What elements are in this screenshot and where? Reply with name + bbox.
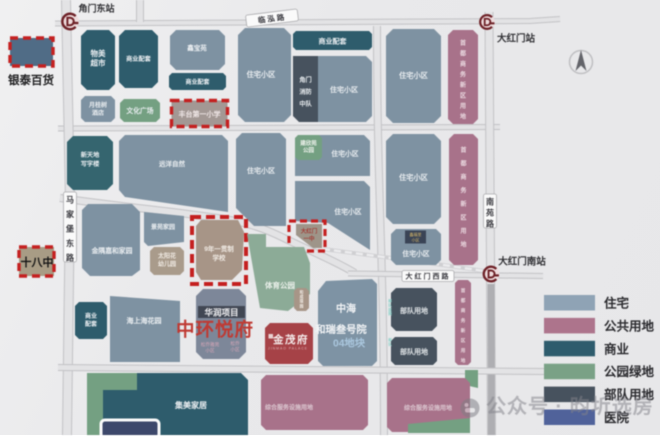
- svg-text:一中: 一中: [303, 235, 315, 243]
- svg-text:住宅小区: 住宅小区: [399, 71, 428, 80]
- svg-text:公园绿地: 公园绿地: [604, 364, 655, 379]
- svg-text:部队用地: 部队用地: [400, 306, 428, 315]
- svg-text:大红门站: 大红门站: [497, 33, 536, 45]
- svg-text:商业: 商业: [85, 312, 97, 320]
- svg-text:鑫福里: 鑫福里: [410, 231, 422, 237]
- svg-text:公共用地: 公共用地: [604, 318, 655, 333]
- svg-text:综合服务设施用地: 综合服务设施用地: [404, 404, 452, 412]
- svg-text:建欣苑: 建欣苑: [300, 139, 317, 147]
- svg-text:集美家居: 集美家居: [174, 400, 207, 410]
- svg-text:中海: 中海: [336, 302, 356, 315]
- svg-text:中环悦府: 中环悦府: [176, 319, 254, 340]
- svg-text:文化广场: 文化广场: [125, 106, 153, 115]
- svg-text:商业配套: 商业配套: [126, 55, 152, 63]
- svg-text:松乔: 松乔: [230, 340, 240, 347]
- svg-text:04地块: 04地块: [333, 337, 366, 350]
- svg-text:大红门西路: 大红门西路: [406, 272, 451, 281]
- svg-text:南苑路: 南苑路: [485, 197, 495, 229]
- svg-text:物美: 物美: [91, 48, 106, 58]
- svg-text:住宅小区: 住宅小区: [331, 149, 358, 158]
- svg-text:9年一贯制: 9年一贯制: [204, 244, 234, 253]
- svg-text:小区: 小区: [412, 237, 420, 243]
- svg-text:住宅小区: 住宅小区: [247, 70, 276, 79]
- svg-text:丰台第一小学: 丰台第一小学: [179, 110, 221, 119]
- svg-text:小区: 小区: [205, 347, 215, 354]
- svg-text:华润项目: 华润项目: [204, 308, 238, 318]
- svg-text:部队: 部队: [388, 337, 392, 346]
- svg-text:住宅小区: 住宅小区: [247, 166, 275, 175]
- svg-text:海上海花园: 海上海花园: [127, 316, 162, 325]
- svg-text:商业: 商业: [604, 341, 630, 356]
- svg-text:月桂树: 月桂树: [88, 101, 107, 109]
- svg-text:金茂府: 金茂府: [272, 333, 309, 346]
- svg-text:住宅小区: 住宅小区: [330, 85, 358, 94]
- svg-text:大红门南站: 大红门南站: [498, 256, 546, 268]
- svg-text:公众号 · 昀圻选房: 公众号 · 昀圻选房: [486, 394, 654, 418]
- svg-text:JINMAO PALACE: JINMAO PALACE: [268, 347, 308, 351]
- svg-text:大红门: 大红门: [301, 227, 318, 235]
- svg-text:住宅小区: 住宅小区: [402, 249, 429, 258]
- svg-text:综合服务设施用地: 综合服务设施用地: [265, 404, 313, 412]
- svg-text:角门东站: 角门东站: [78, 3, 114, 14]
- svg-text:商业配套: 商业配套: [319, 37, 348, 46]
- svg-text:小区: 小区: [230, 346, 240, 353]
- svg-text:太阳花: 太阳花: [157, 252, 176, 260]
- svg-text:学校: 学校: [213, 253, 227, 262]
- svg-text:配套: 配套: [85, 320, 97, 328]
- svg-text:部队用地: 部队用地: [400, 347, 428, 356]
- svg-text:体育公园: 体育公园: [265, 280, 295, 290]
- svg-text:部队医院: 部队医院: [388, 298, 392, 316]
- svg-text:新天地: 新天地: [81, 151, 100, 159]
- svg-text:住宅小区: 住宅小区: [399, 173, 428, 182]
- svg-text:住宅小区: 住宅小区: [334, 207, 361, 216]
- svg-text:住宅: 住宅: [604, 296, 630, 311]
- svg-text:鑫宝苑: 鑫宝苑: [186, 43, 207, 52]
- svg-text:十八中: 十八中: [21, 255, 54, 269]
- svg-text:中队: 中队: [299, 100, 312, 108]
- svg-text:和瑞叁号院: 和瑞叁号院: [315, 323, 367, 336]
- svg-text:和成璟园: 和成璟园: [299, 290, 304, 309]
- svg-text:公园: 公园: [303, 146, 315, 154]
- svg-text:角门: 角门: [299, 76, 311, 84]
- svg-text:写字楼: 写字楼: [81, 160, 100, 168]
- svg-text:景苑家园: 景苑家园: [150, 223, 175, 231]
- svg-text:金隅嘉和家园: 金隅嘉和家园: [91, 246, 133, 255]
- svg-text:酒店: 酒店: [92, 109, 104, 117]
- svg-text:银泰百货: 银泰百货: [8, 73, 54, 87]
- svg-text:远洋自然: 远洋自然: [159, 159, 186, 168]
- svg-text:消防: 消防: [299, 88, 312, 96]
- svg-text:超市: 超市: [90, 58, 106, 68]
- svg-text:幼儿园: 幼儿园: [158, 260, 176, 268]
- svg-text:商业配套: 商业配套: [185, 78, 209, 86]
- svg-text:松乔雅苑: 松乔雅苑: [201, 341, 220, 348]
